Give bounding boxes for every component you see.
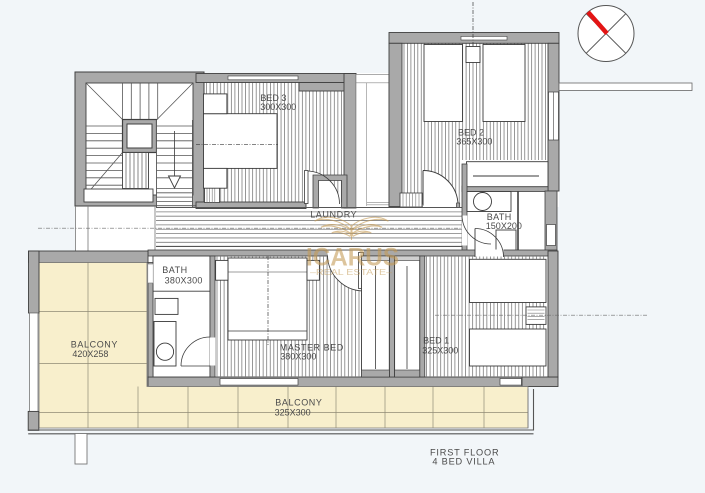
svg-text:420X258: 420X258	[72, 349, 108, 359]
svg-text:BED 1: BED 1	[423, 336, 449, 346]
svg-text:380X300: 380X300	[165, 276, 203, 286]
svg-text:BATH: BATH	[162, 265, 187, 275]
svg-text:BALCONY: BALCONY	[275, 397, 322, 407]
svg-text:150X200: 150X200	[486, 221, 522, 231]
svg-text:300X300: 300X300	[260, 102, 296, 112]
svg-text:365X300: 365X300	[456, 137, 492, 147]
svg-text:BALCONY: BALCONY	[71, 340, 118, 350]
svg-text:380X300: 380X300	[280, 352, 316, 362]
svg-text:325X300: 325X300	[422, 346, 458, 356]
svg-text:4 BED VILLA: 4 BED VILLA	[432, 457, 495, 467]
svg-text:325X300: 325X300	[275, 407, 311, 417]
svg-text:–REAL ESTATE–: –REAL ESTATE–	[310, 268, 393, 277]
